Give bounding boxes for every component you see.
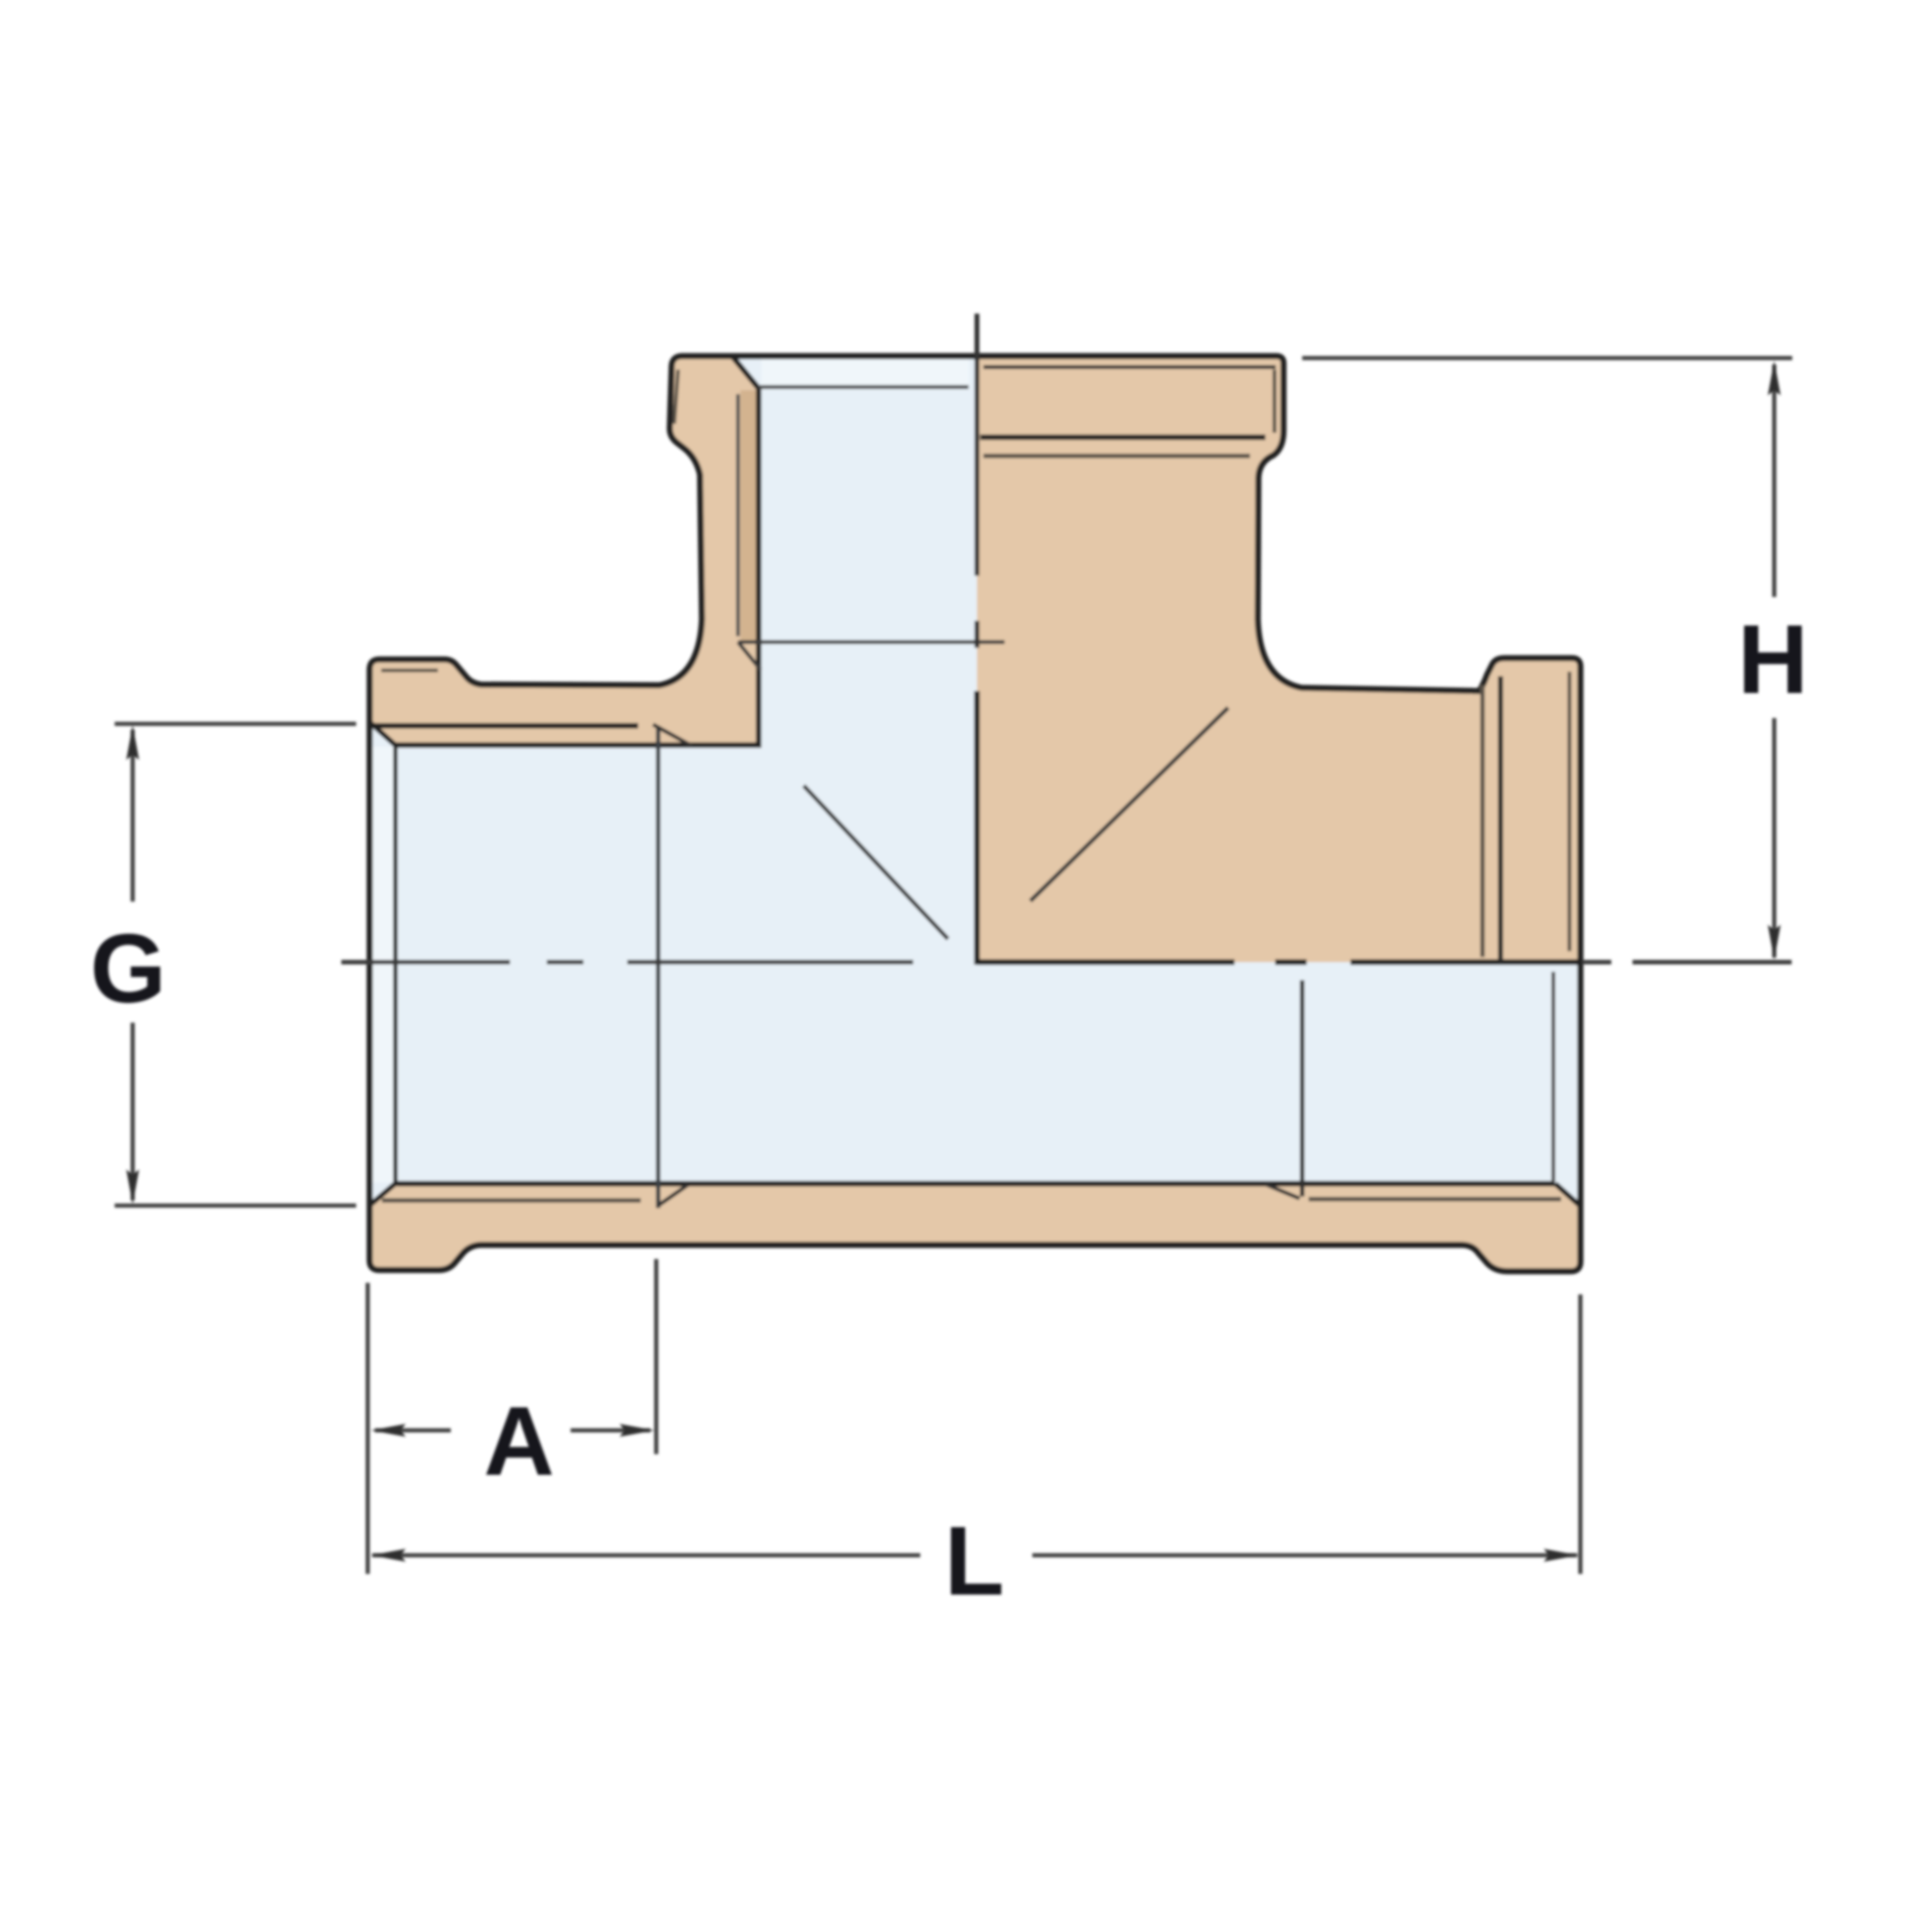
svg-text:L: L [945, 1506, 1005, 1616]
svg-text:H: H [1738, 605, 1808, 714]
svg-text:G: G [90, 914, 166, 1023]
svg-text:A: A [484, 1387, 554, 1496]
